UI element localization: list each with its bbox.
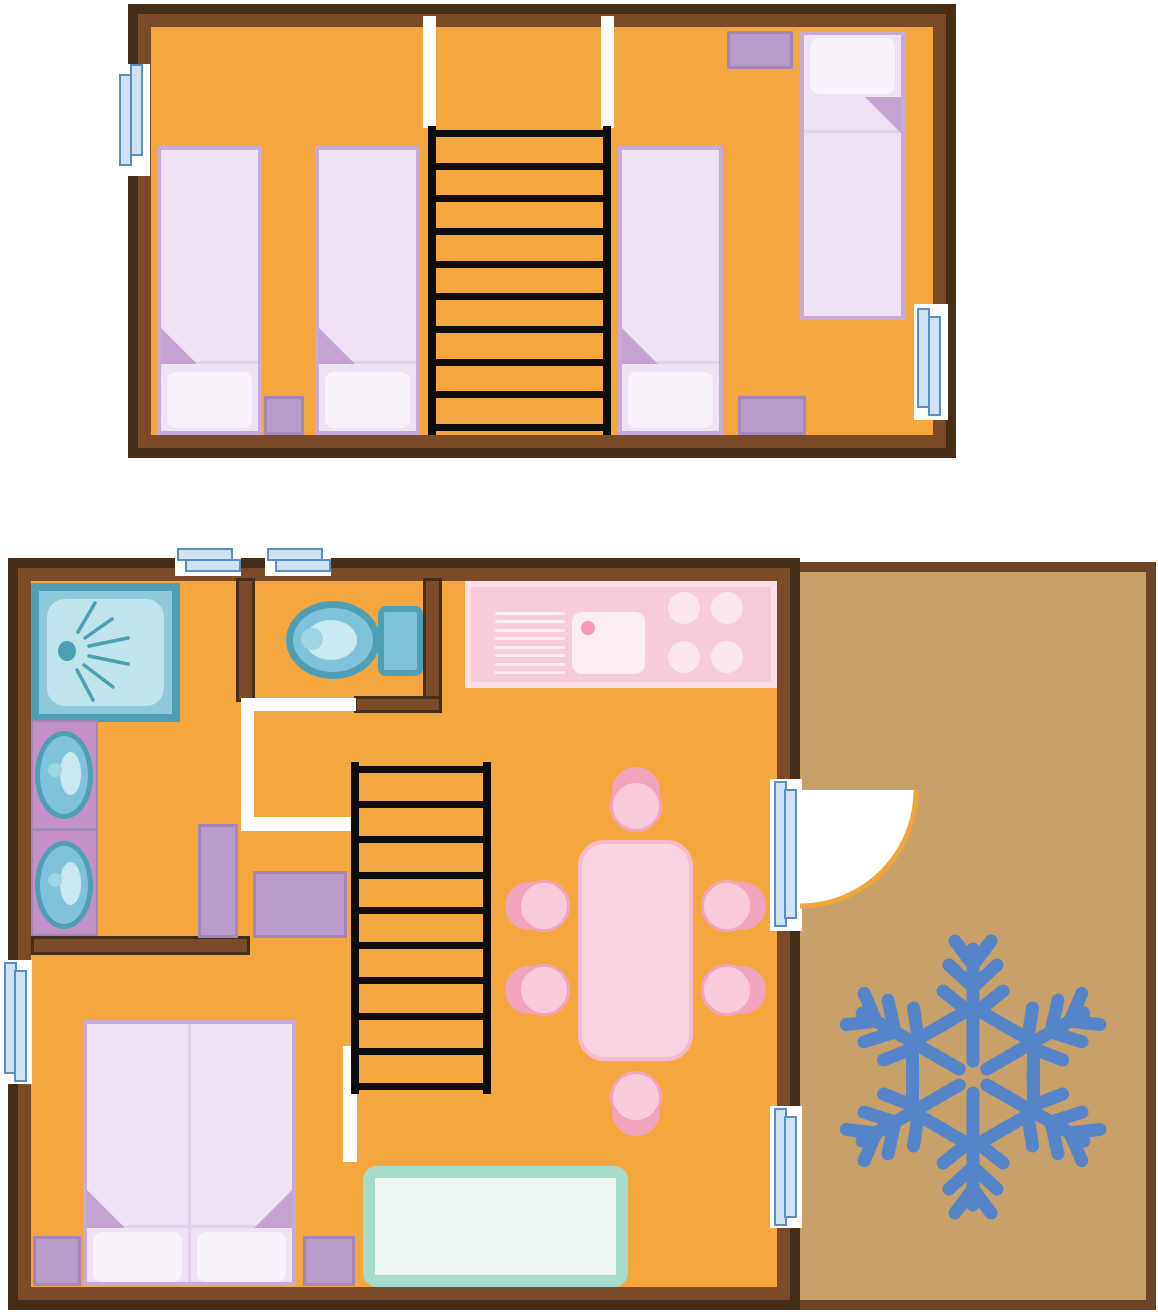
shower [31,583,180,722]
basin-highlight [60,862,81,906]
floor-plan-canvas [0,0,1158,1314]
pillow [628,372,713,428]
wall-opening [241,817,353,831]
double-bed [83,1020,296,1286]
blanket-edge [804,130,901,133]
drainer-line [495,620,565,623]
chair [701,880,753,932]
blanket-fold [319,328,355,364]
chair [518,964,570,1016]
window-pane [130,64,143,156]
blanket-fold [87,1190,125,1228]
window-pane [185,559,241,572]
ladder-rung [359,1048,483,1055]
basin-highlight [60,752,81,796]
washbasin [35,731,93,819]
blanket-fold [161,328,197,364]
ladder-rung [359,801,483,808]
wardrobe [253,871,347,938]
door-glass-pane [784,1116,797,1218]
interior-wall [31,936,250,955]
single-bed [157,146,262,435]
toilet-tank [378,606,423,676]
nightstand [303,1236,355,1286]
ladder-rung [436,326,603,333]
ladder-rung [436,359,603,366]
single-bed [315,146,420,435]
stove-burner [668,592,700,624]
toilet-bowl-dot [301,628,323,650]
pillow [93,1232,182,1282]
ladder-rung [436,424,603,431]
chair [518,880,570,932]
nightstand [33,1236,81,1286]
sofa [363,1166,628,1287]
washbasin [35,841,93,929]
interior-wall [236,578,255,702]
drainer-line [495,663,565,666]
ladder-rung [436,261,603,268]
dining-table [578,840,693,1061]
drainer-line [495,629,565,632]
ladder-rung [436,163,603,170]
stove-burner [668,641,700,673]
ladder-rung [436,130,603,137]
chair [610,780,662,832]
wall-opening [241,711,254,821]
ladder-rung [436,391,603,398]
interior-wall [354,696,442,713]
nightstand [738,396,806,435]
single-bed [618,146,723,435]
pillow [810,38,895,94]
nightstand [727,31,793,69]
chair [701,964,753,1016]
nightstand [264,396,304,435]
faucet-dot [581,621,595,635]
ladder-rung [359,977,483,984]
ladder-rung [436,195,603,202]
ladder-rung [359,872,483,879]
chair [610,1071,662,1123]
stairs-ladder-ground [351,762,491,1094]
ladder-rung [359,766,483,773]
pillow [197,1232,286,1282]
ladder-rung [436,293,603,300]
drainer-line [495,612,565,615]
stairs-ladder-upper [428,126,611,435]
basin-drain [48,873,62,887]
snowflake-icon [818,922,1128,1232]
ladder-rung [359,1083,483,1090]
stair-opening-rail [423,16,436,128]
window-pane [928,316,941,416]
drainer-line [495,637,565,640]
vanity-divider [33,828,96,831]
ladder-rung [359,836,483,843]
blanket-fold [865,97,901,133]
wall-opening [241,698,356,711]
window-pane [14,970,27,1082]
ladder-rung [359,1013,483,1020]
single-bed [800,31,905,320]
ladder-rung [359,942,483,949]
stove-burner [711,592,743,624]
door-glass-pane [784,789,797,919]
drainer-line [495,646,565,649]
window-pane [275,559,331,572]
stove-burner [711,641,743,673]
ladder-rung [436,228,603,235]
ladder-rung [359,907,483,914]
basin-drain [48,763,62,777]
shower-spray-icon [53,601,157,705]
kitchen-counter [465,581,777,688]
bed-divider [188,1024,191,1282]
door-swing [798,787,924,915]
stair-opening-rail [601,16,614,128]
interior-wall [423,578,442,713]
kitchen-sink [572,612,645,674]
blanket-fold [254,1190,292,1228]
washbasin-vanity [31,720,98,936]
toilet-bowl [286,601,380,679]
drainer-line [495,671,565,674]
pillow [325,372,410,428]
wardrobe [198,824,238,938]
blanket-fold [622,328,658,364]
pillow [167,372,252,428]
drainer-line [495,654,565,657]
